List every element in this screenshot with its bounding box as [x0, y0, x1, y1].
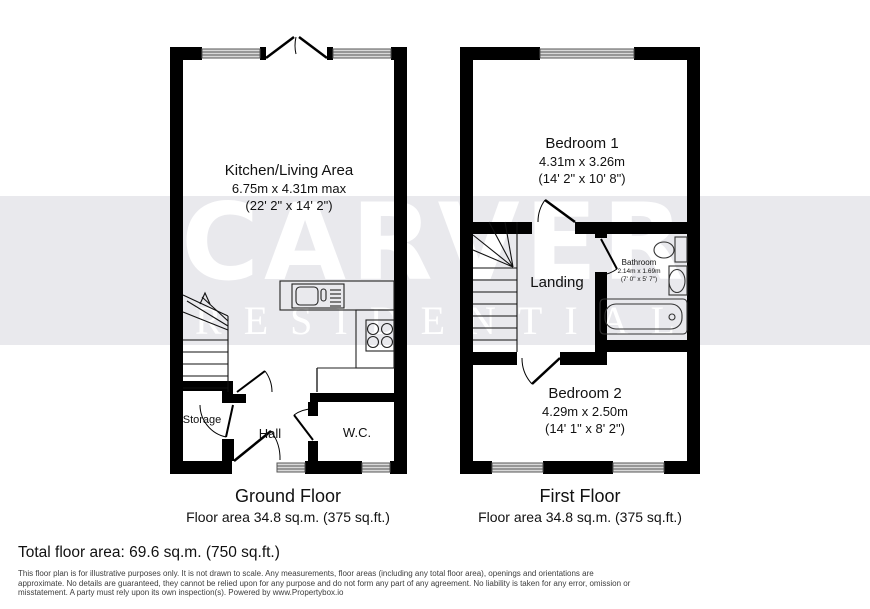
room-label-hall: Hall [239, 426, 301, 441]
room-label-kitchen-living: Kitchen/Living Area 6.75m x 4.31m max (2… [180, 161, 398, 214]
room-dims-imperial: (22' 2" x 14' 2") [180, 197, 398, 214]
window-glyph [613, 463, 664, 472]
hall-door-swing [237, 371, 272, 392]
room-label-bathroom: Bathroom 2.14m x 1.69m (7' 0" x 5' 7") [607, 258, 671, 284]
kitchen-sink-icon [292, 284, 344, 308]
window-glyph [362, 463, 390, 472]
hob-icon [366, 320, 394, 351]
room-label-bedroom2: Bedroom 2 4.29m x 2.50m (14' 1" x 8' 2") [495, 384, 675, 437]
room-name: Bedroom 1 [492, 134, 672, 153]
room-name: Kitchen/Living Area [180, 161, 398, 180]
stairs-icon [183, 293, 228, 392]
window-glyph [333, 49, 391, 58]
disclaimer-line: This floor plan is for illustrative purp… [18, 569, 630, 579]
window-glyph [202, 49, 260, 58]
bedroom2-door-swing [522, 358, 560, 384]
bathtub-icon [600, 299, 687, 334]
room-label-wc: W.C. [326, 425, 388, 440]
disclaimer: This floor plan is for illustrative purp… [18, 569, 630, 598]
floorplan-drawing [0, 0, 870, 545]
room-label-storage: Storage [171, 414, 233, 427]
ground-floor-title: Ground Floor [168, 485, 408, 507]
room-dims-metric: 4.31m x 3.26m [492, 153, 672, 170]
disclaimer-line: misstatement. A party must rely upon its… [18, 588, 630, 598]
room-dims-metric: 6.75m x 4.31m max [180, 180, 398, 197]
disclaimer-line: approximate. No details are guaranteed, … [18, 579, 630, 589]
room-dims-imperial: (7' 0" x 5' 7") [607, 276, 671, 284]
room-label-bedroom1: Bedroom 1 4.31m x 3.26m (14' 2" x 10' 8"… [492, 134, 672, 187]
bedroom1-door-swing [538, 200, 575, 222]
basin-icon [669, 266, 687, 295]
ground-floor-area: Floor area 34.8 sq.m. (375 sq.ft.) [158, 508, 418, 526]
ground-floor-doors [200, 37, 327, 461]
french-doors-swing [266, 37, 327, 58]
total-floor-area: Total floor area: 69.6 sq.m. (750 sq.ft.… [18, 544, 280, 562]
ground-floor-plan [170, 37, 407, 474]
room-name: Bathroom [607, 258, 671, 268]
ground-floor-walls [170, 47, 407, 474]
first-floor-title: First Floor [460, 485, 700, 507]
floorplan-page: { "watermark": { "line1": "CARVER", "lin… [0, 0, 870, 609]
room-name: Bedroom 2 [495, 384, 675, 403]
bathroom-fixtures [600, 237, 687, 334]
first-floor-area: Floor area 34.8 sq.m. (375 sq.ft.) [450, 508, 710, 526]
window-glyph [540, 49, 634, 58]
window-glyph [277, 463, 305, 472]
ground-floor-windows [202, 49, 391, 472]
room-dims-imperial: (14' 2" x 10' 8") [492, 170, 672, 187]
kitchen-fixtures [280, 281, 394, 392]
window-glyph [492, 463, 543, 472]
room-dims-imperial: (14' 1" x 8' 2") [495, 420, 675, 437]
room-dims-metric: 4.29m x 2.50m [495, 403, 675, 420]
room-label-landing: Landing [507, 274, 607, 291]
room-dims-metric: 2.14m x 1.69m [607, 268, 671, 276]
